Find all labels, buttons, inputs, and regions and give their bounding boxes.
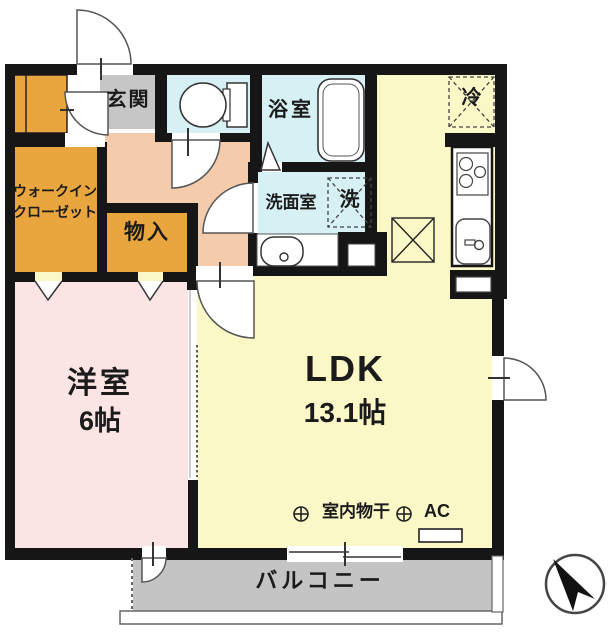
- floor-plan-drawing: [0, 0, 610, 640]
- fridge-label: 冷: [449, 88, 494, 109]
- toilet-icon: [180, 83, 247, 127]
- wic-door-opening: [65, 133, 105, 147]
- ac-label: AC: [416, 502, 458, 521]
- entrance-door-arc: [77, 10, 131, 64]
- entrance-label: 玄関: [100, 90, 157, 111]
- washroom-corner-niche: [348, 244, 375, 266]
- walk-in-closet-label-line1: ウォークイン: [13, 184, 97, 199]
- sliding-partition-track: [188, 282, 197, 480]
- ldk-door-opening: [196, 266, 253, 281]
- bathtub-icon: [318, 79, 364, 161]
- kitchen-window: [456, 277, 491, 292]
- balcony-label: バルコニー: [240, 569, 400, 592]
- storage-label: 物入: [107, 222, 187, 244]
- ldk-size: 13.1帖: [270, 398, 420, 427]
- western-room-label: 洋室: [40, 368, 160, 400]
- sink-basin-icon: [257, 234, 338, 266]
- washroom-label: 洗面室: [254, 194, 328, 212]
- kitchen-sink-icon: [456, 219, 490, 264]
- walk-in-closet-label-line2: クローゼット: [13, 205, 97, 220]
- ac-unit-icon: [419, 529, 462, 542]
- bathroom-label: 浴室: [262, 100, 320, 121]
- western-room-size: 6帖: [40, 407, 160, 435]
- floor-plan: 玄関 浴室 洗面室 洗 冷 物入 ウォークイン クローゼット 洋室 6帖 LDK…: [0, 0, 610, 640]
- hallway-floor: [100, 133, 157, 213]
- entrance-door-opening: [77, 64, 133, 75]
- ldk-label: LDK: [270, 350, 420, 388]
- indoor-drying-label: 室内物干: [312, 503, 400, 521]
- compass-icon: [546, 555, 604, 613]
- kitchen-counter: [452, 147, 492, 266]
- shoe-cabinet: [13, 75, 67, 133]
- stove-icon: [457, 153, 488, 195]
- side-door-arc: [504, 358, 546, 400]
- washer-label: 洗: [328, 190, 371, 211]
